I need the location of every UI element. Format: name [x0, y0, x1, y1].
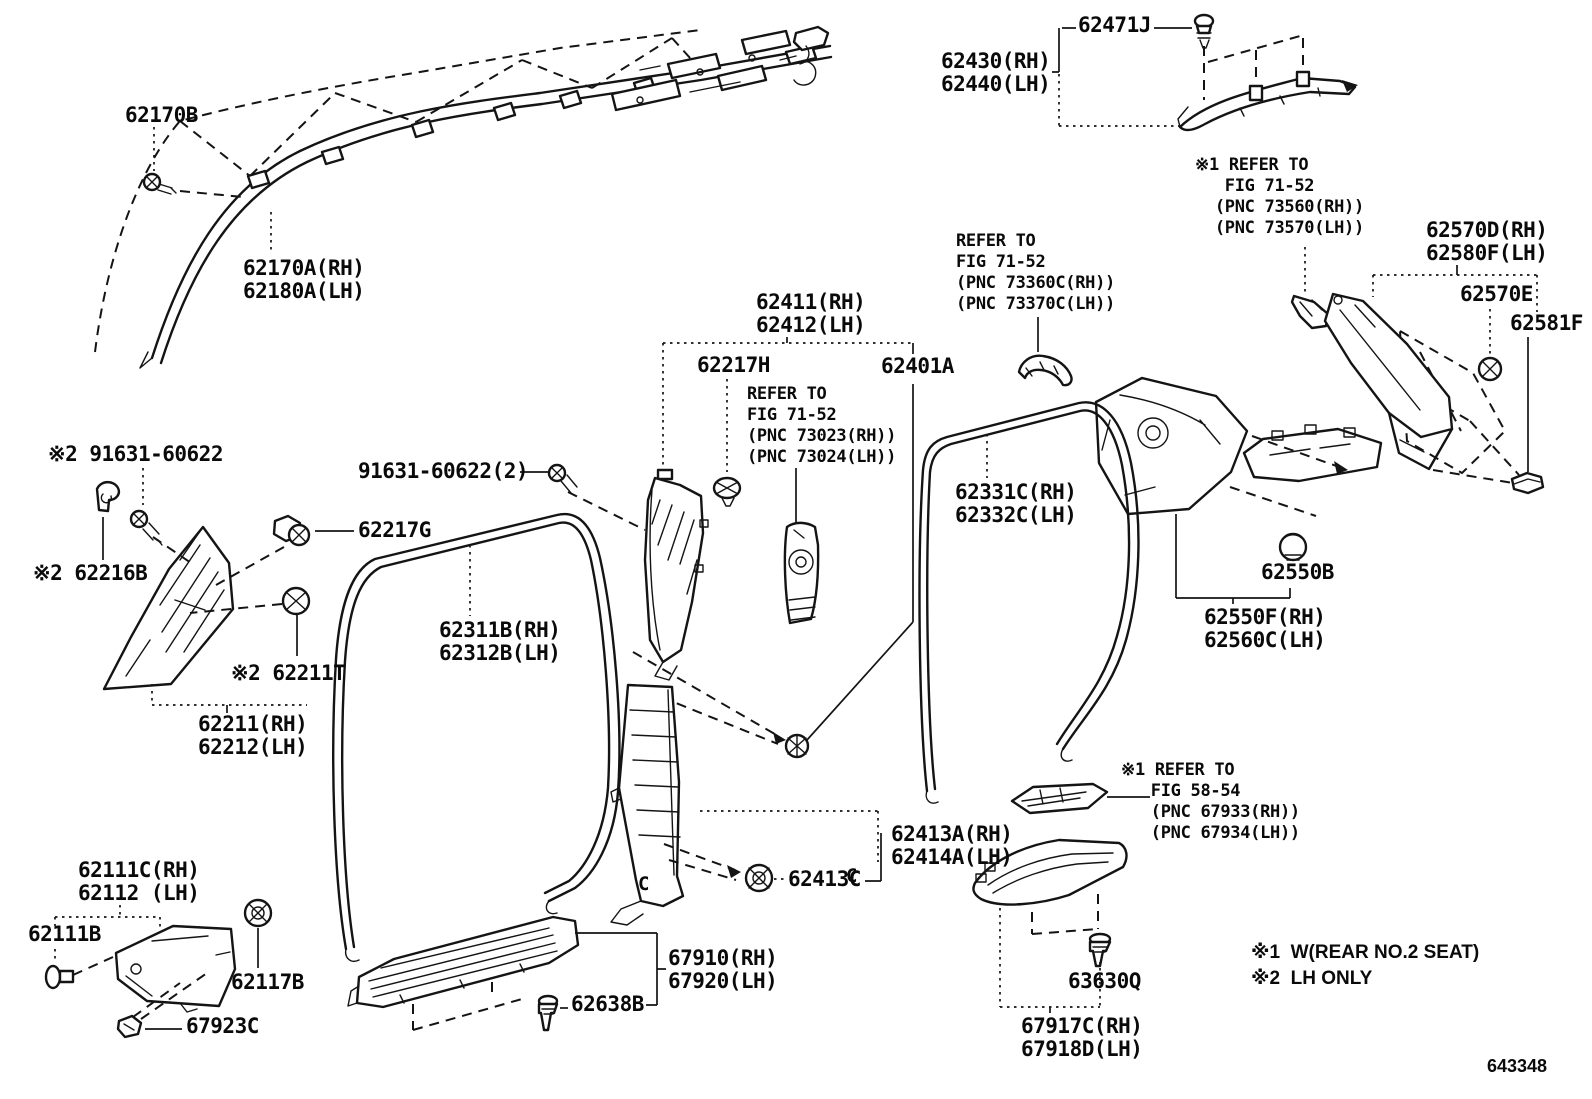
- label-62581F: 62581F: [1510, 312, 1583, 335]
- ref-note-73023: REFER TO FIG 71-52 (PNC 73023(RH)) (PNC …: [747, 384, 896, 468]
- label-63630Q: 63630Q: [1068, 970, 1141, 993]
- label-62217G: 62217G: [358, 519, 431, 542]
- label-62550B: 62550B: [1261, 561, 1334, 584]
- parts-diagram-page: 62170B 62170A(RH) 62180A(LH) 62471J 6243…: [0, 0, 1592, 1099]
- connector-marker-c-bracket: C: [846, 866, 857, 886]
- label-62170B: 62170B: [125, 104, 198, 127]
- label-62331C: 62331C(RH) 62332C(LH): [955, 481, 1076, 527]
- label-62550F: 62550F(RH) 62560C(LH): [1204, 606, 1325, 652]
- grip-refer-part-drawing: [1019, 317, 1072, 385]
- label-67923C: 67923C: [186, 1015, 259, 1038]
- label-91631-60622-note2: ※2 91631-60622: [48, 443, 223, 466]
- legend-note-1: ※1 W(REAR NO.2 SEAT): [1251, 940, 1479, 966]
- rear-roof-refer-part-drawing: [1292, 247, 1328, 328]
- label-67917C: 67917C(RH) 67918D(LH): [1021, 1015, 1142, 1061]
- label-62217H: 62217H: [697, 354, 770, 377]
- label-67910: 67910(RH) 67920(LH): [668, 947, 777, 993]
- label-62413A: 62413A(RH) 62414A(LH): [891, 823, 1012, 869]
- front-pillar-trim-drawing: [97, 465, 645, 713]
- label-62430: 62430(RH) 62440(LH): [941, 50, 1050, 96]
- curtain-airbag-drawing: [95, 27, 831, 368]
- legend-note-2: ※2 LH ONLY: [1251, 966, 1372, 992]
- label-62570E: 62570E: [1460, 283, 1533, 306]
- label-62111B: 62111B: [28, 923, 101, 946]
- label-62401A: 62401A: [881, 355, 954, 378]
- ref-note-67933: ※1 REFER TO FIG 58-54 (PNC 67933(RH)) (P…: [1121, 760, 1300, 844]
- label-62638B: 62638B: [571, 993, 644, 1016]
- figure-number: 643348: [1487, 1056, 1547, 1076]
- label-62216B: ※2 62216B: [33, 562, 147, 585]
- label-62570D: 62570D(RH) 62580F(LH): [1426, 219, 1547, 265]
- ref-note-73560: ※1 REFER TO FIG 71-52 (PNC 73560(RH)) (P…: [1195, 155, 1364, 239]
- label-62471J: 62471J: [1078, 14, 1151, 37]
- label-62211: 62211(RH) 62212(LH): [198, 713, 307, 759]
- label-62117B: 62117B: [231, 971, 304, 994]
- label-62411: 62411(RH) 62412(LH): [756, 291, 865, 337]
- label-62170A: 62170A(RH) 62180A(LH): [243, 257, 364, 303]
- connector-marker-c-pillar: C: [638, 874, 649, 894]
- label-62311B: 62311B(RH) 62312B(LH): [439, 619, 560, 665]
- label-62211T: ※2 62211T: [231, 662, 345, 685]
- ref-note-73360C: REFER TO FIG 71-52 (PNC 73360C(RH)) (PNC…: [956, 231, 1115, 315]
- front-weatherstrip-drawing: [333, 514, 619, 961]
- label-91631-60622-x2: 91631-60622(2): [358, 460, 528, 483]
- label-62111C: 62111C(RH) 62112 (LH): [78, 859, 199, 905]
